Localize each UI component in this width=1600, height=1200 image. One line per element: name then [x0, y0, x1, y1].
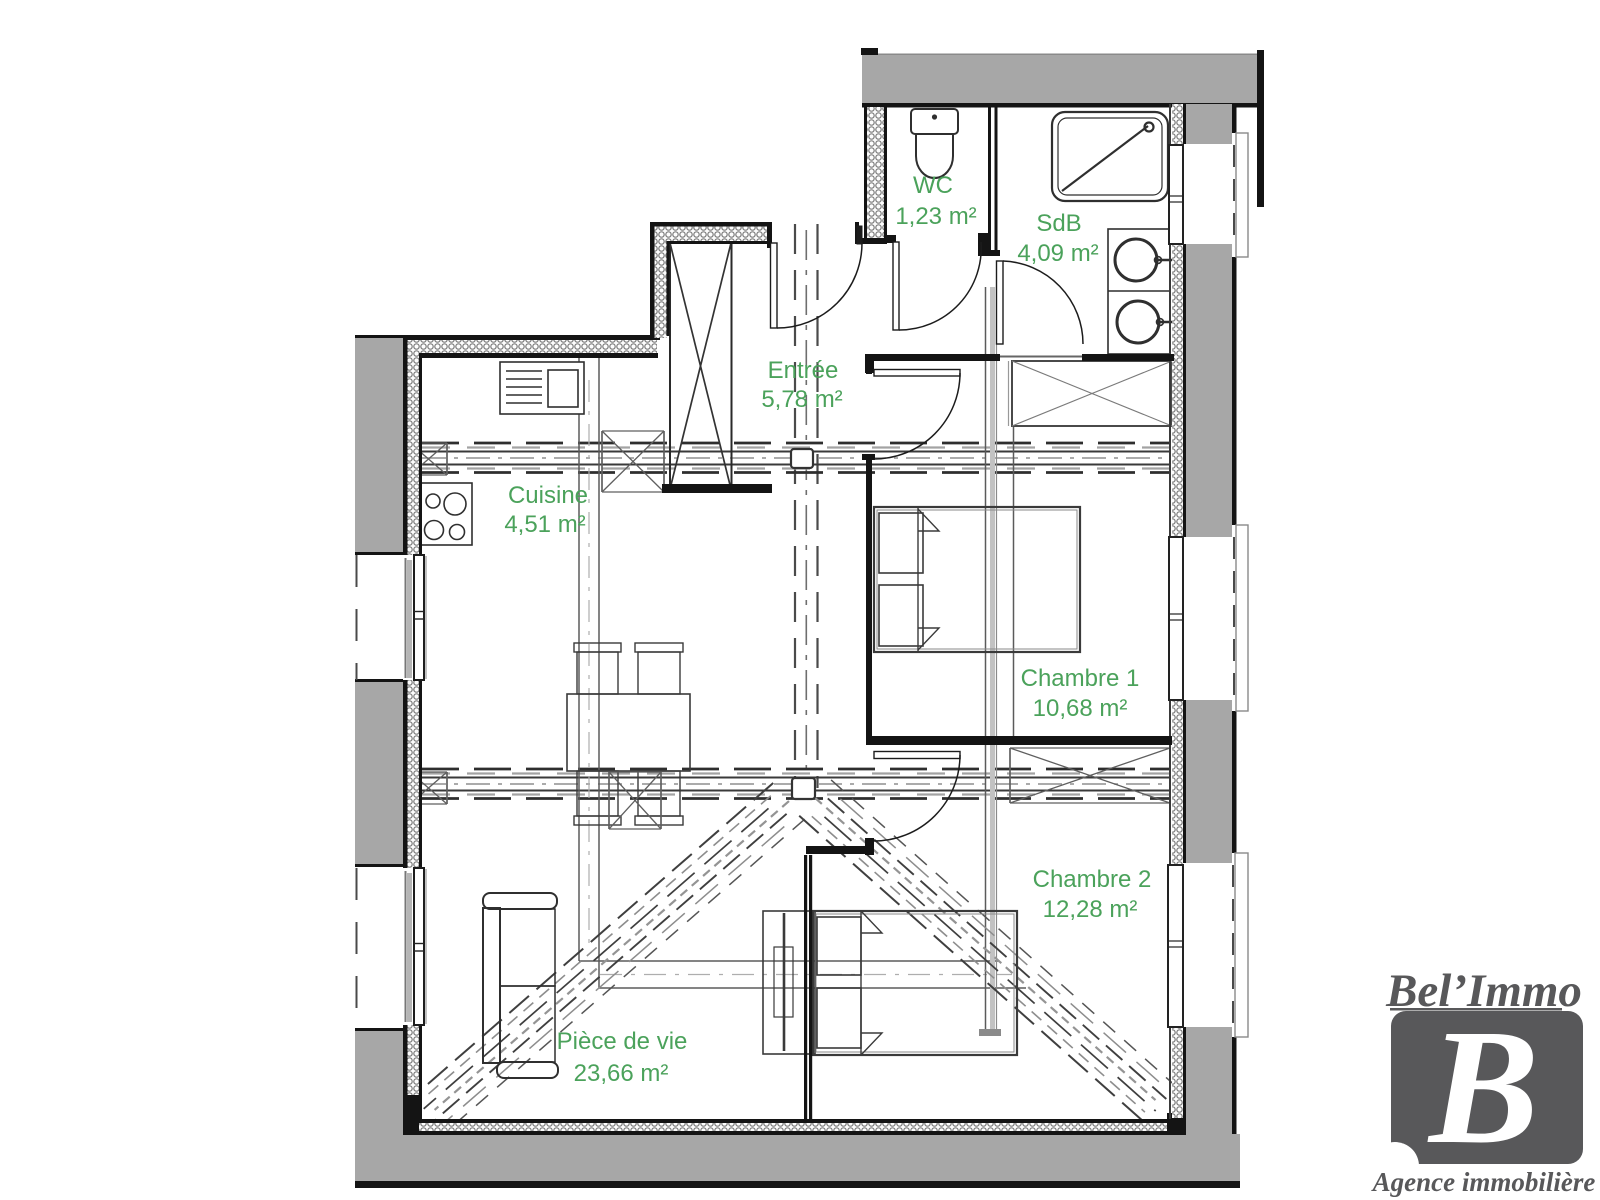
svg-text:WC: WC: [913, 172, 953, 199]
svg-text:4,51 m²: 4,51 m²: [504, 511, 585, 538]
svg-text:12,28 m²: 12,28 m²: [1043, 896, 1138, 923]
svg-text:Pièce de vie: Pièce de vie: [557, 1028, 688, 1055]
svg-text:10,68 m²: 10,68 m²: [1033, 695, 1128, 722]
svg-text:Entrée: Entrée: [768, 357, 839, 384]
svg-text:SdB: SdB: [1036, 210, 1081, 237]
svg-text:Cuisine: Cuisine: [508, 482, 588, 509]
svg-text:5,78 m²: 5,78 m²: [761, 386, 842, 413]
svg-text:1,23 m²: 1,23 m²: [895, 203, 976, 230]
svg-text:4,09 m²: 4,09 m²: [1017, 240, 1098, 267]
svg-text:B: B: [1427, 995, 1539, 1178]
svg-text:Agence immobilière: Agence immobilière: [1371, 1167, 1596, 1197]
svg-text:Chambre 2: Chambre 2: [1033, 866, 1152, 893]
svg-text:Chambre 1: Chambre 1: [1021, 665, 1140, 692]
svg-text:23,66 m²: 23,66 m²: [574, 1060, 669, 1087]
